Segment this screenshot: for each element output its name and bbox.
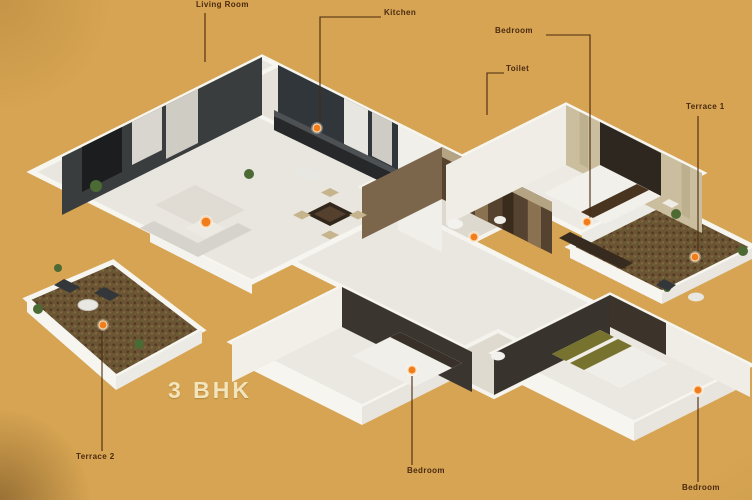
hotspot-terrace-right[interactable] bbox=[689, 251, 701, 263]
floor-plan-scene: Living Room Kitchen Bedroom Toilet Terra… bbox=[0, 0, 752, 500]
plant bbox=[671, 209, 681, 219]
hotspot-kitchen[interactable] bbox=[311, 122, 323, 134]
plant bbox=[54, 264, 62, 272]
plan-title: 3 BHK bbox=[168, 377, 252, 404]
hotspot-bedroom-right[interactable] bbox=[692, 384, 704, 396]
label-living-room: Living Room bbox=[196, 0, 249, 9]
plant bbox=[738, 246, 748, 256]
hotspot-bedroom-middle[interactable] bbox=[406, 364, 418, 376]
label-toilet: Toilet bbox=[506, 64, 529, 73]
plant bbox=[33, 304, 43, 314]
small-toilet-wc bbox=[491, 352, 505, 361]
terrace-left-floor bbox=[27, 262, 202, 377]
label-terrace-right: Terrace 1 bbox=[686, 102, 725, 111]
isometric-floor-plan bbox=[0, 0, 752, 500]
leader-line-toilet bbox=[487, 73, 504, 115]
hotspot-living-room[interactable] bbox=[199, 215, 213, 229]
plant bbox=[90, 180, 102, 192]
plant bbox=[244, 169, 254, 179]
terrace-right-table bbox=[688, 293, 704, 302]
terrace-left-table bbox=[78, 300, 98, 311]
hotspot-terrace-left[interactable] bbox=[97, 319, 109, 331]
label-kitchen: Kitchen bbox=[384, 8, 416, 17]
plant bbox=[134, 339, 144, 349]
label-terrace-left: Terrace 2 bbox=[76, 452, 115, 461]
toilet-sink bbox=[494, 216, 506, 224]
label-bedroom-right: Bedroom bbox=[682, 483, 720, 492]
toilet-wc bbox=[447, 219, 463, 229]
hotspot-toilet[interactable] bbox=[468, 231, 480, 243]
hotspot-bedroom-master[interactable] bbox=[581, 216, 593, 228]
label-bedroom-middle: Bedroom bbox=[407, 466, 445, 475]
label-bedroom-master: Bedroom bbox=[495, 26, 533, 35]
